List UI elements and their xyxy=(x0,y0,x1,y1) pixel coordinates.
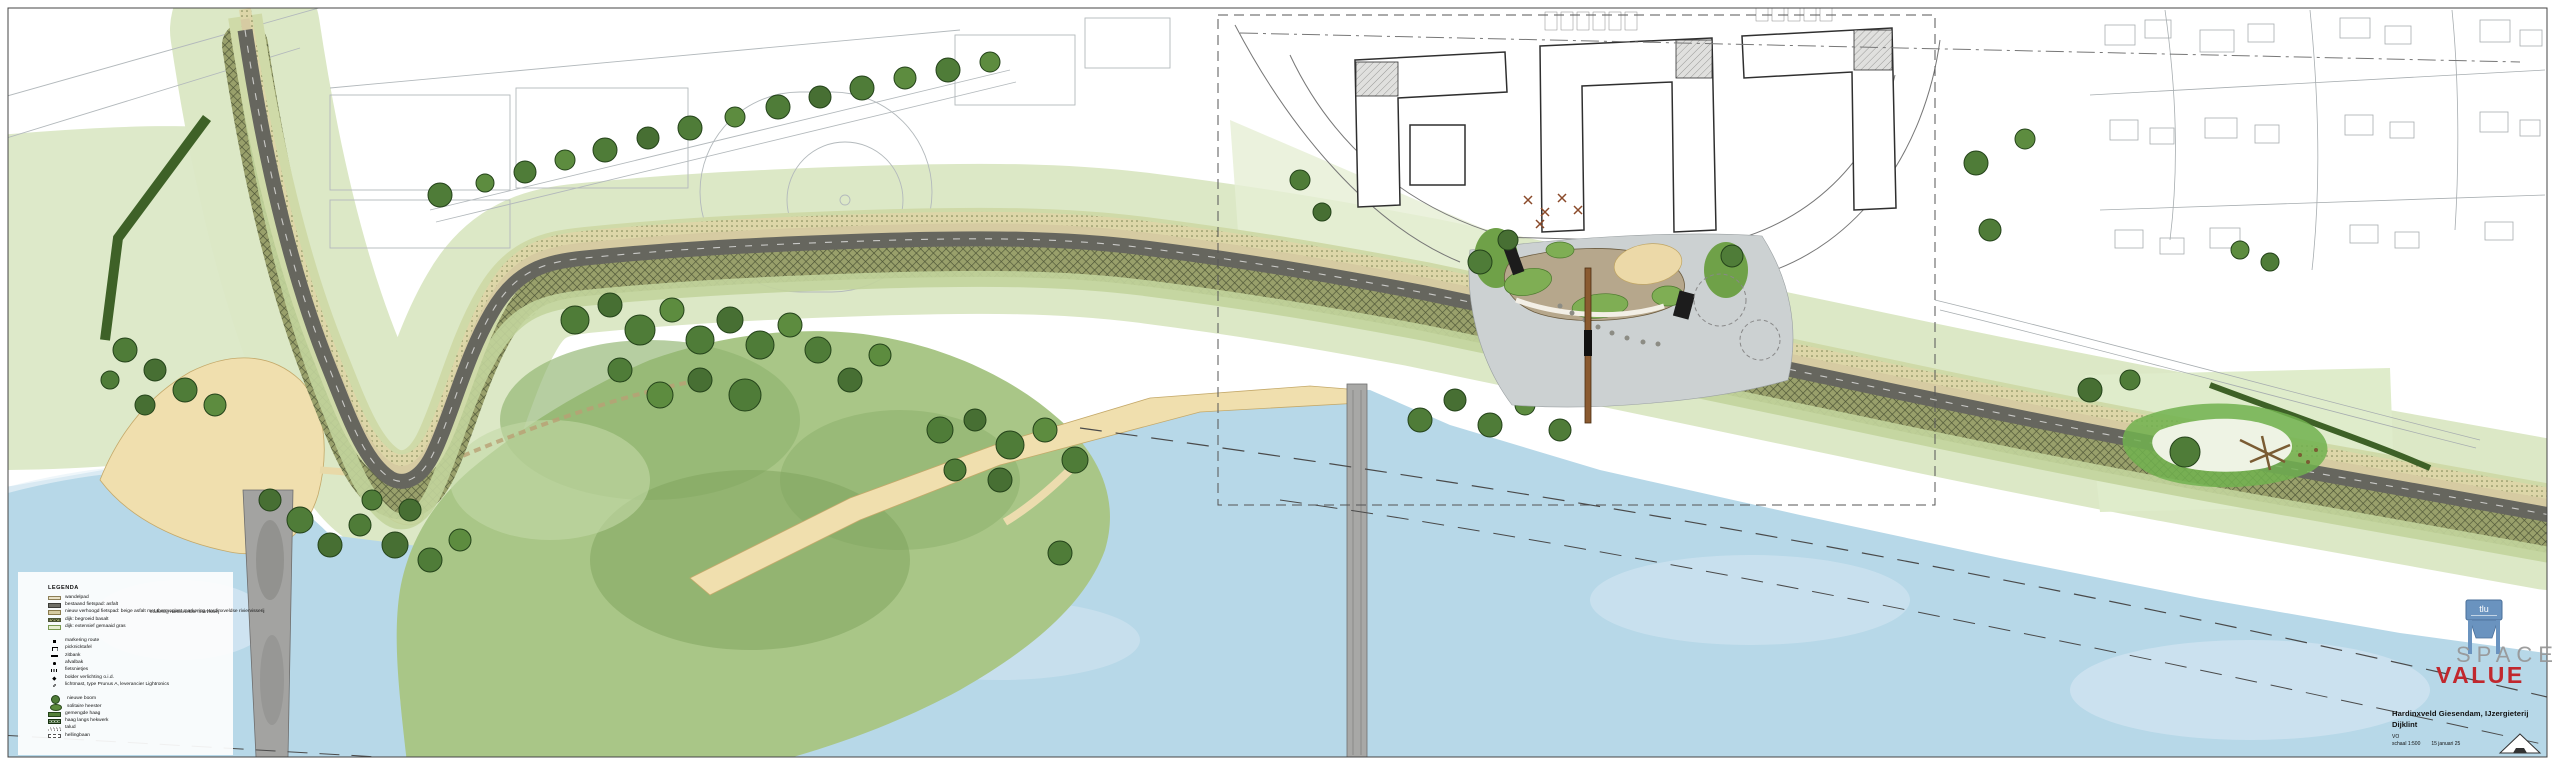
legend-item: dijk: extensief gemaaid gras xyxy=(48,624,265,631)
swatch-nieuw-fietspad-icon xyxy=(48,610,61,615)
scale-label: schaal 1:500 xyxy=(2392,741,2420,747)
haag-hekwerk-icon xyxy=(48,719,61,724)
legend-item: haag langs hekwerk xyxy=(48,718,265,725)
zitbank-icon xyxy=(48,654,61,659)
logo-value-text: VALUE xyxy=(2436,664,2559,687)
swatch-dijk-gras-icon xyxy=(48,625,61,630)
legend-item: nieuw verhoogd fietspad: beige asfalt me… xyxy=(48,609,265,616)
legend-item: wandelpad xyxy=(48,595,265,602)
legend-item: gemengde haag xyxy=(48,711,265,718)
center-pier xyxy=(1347,384,1367,757)
legend-item: fietsnietjes xyxy=(48,667,265,674)
phase-label: VO xyxy=(2392,734,2529,740)
swatch-fietspad-asfalt-icon xyxy=(48,603,61,608)
project-subtitle: Dijklint xyxy=(2392,720,2529,729)
legend: LEGENDA wandelpad bestaand fietspad: asf… xyxy=(48,585,265,740)
fietsnietjes-icon xyxy=(48,669,61,674)
legend-item: dijk: begroeid basalt xyxy=(48,616,265,623)
legend-item: picknicktafel xyxy=(48,645,265,652)
talud-icon xyxy=(48,727,61,732)
project-title: Hardinxveld Giesendam, IJzergieterij xyxy=(2392,709,2529,718)
legend-item: talud xyxy=(48,725,265,732)
picknicktafel-icon xyxy=(48,647,61,652)
legend-item: nieuwe boom xyxy=(48,696,265,703)
markering-route-icon xyxy=(48,639,61,644)
swatch-wandelpad-icon xyxy=(48,596,61,601)
legend-item: bolder verlichting o.i.d. xyxy=(48,674,265,681)
legend-title: LEGENDA xyxy=(48,585,265,591)
afvalbak-icon xyxy=(48,661,61,666)
legend-item: zitbank xyxy=(48,653,265,660)
site-plan-canvas: tlu xyxy=(0,0,2560,772)
legend-item: bestaand fietspad: asfalt xyxy=(48,602,265,609)
tlu-label: tlu xyxy=(2479,604,2489,614)
space-value-logo: SPACE VALUE xyxy=(2436,644,2559,687)
legend-item: hellingbaan xyxy=(48,733,265,740)
gemengde-haag-icon xyxy=(48,712,61,717)
date-label: 15 januari 25 xyxy=(2431,741,2460,747)
swatch-dijk-basalt-icon xyxy=(48,618,61,623)
solitaire-heester-icon xyxy=(50,704,62,711)
bolder-verlichting-icon xyxy=(48,676,61,681)
site-plan-sheet: tlu markering Hardinxveldse riviervisser… xyxy=(0,0,2560,772)
hellingbaan-icon xyxy=(48,734,61,739)
lichtmast-icon xyxy=(48,683,61,688)
legend-item: lichtmast, type Prunus A, leverancier Li… xyxy=(48,682,265,689)
title-block: Hardinxveld Giesendam, IJzergieterij Dij… xyxy=(2392,709,2529,747)
legend-item: solitaire heester xyxy=(48,703,265,710)
